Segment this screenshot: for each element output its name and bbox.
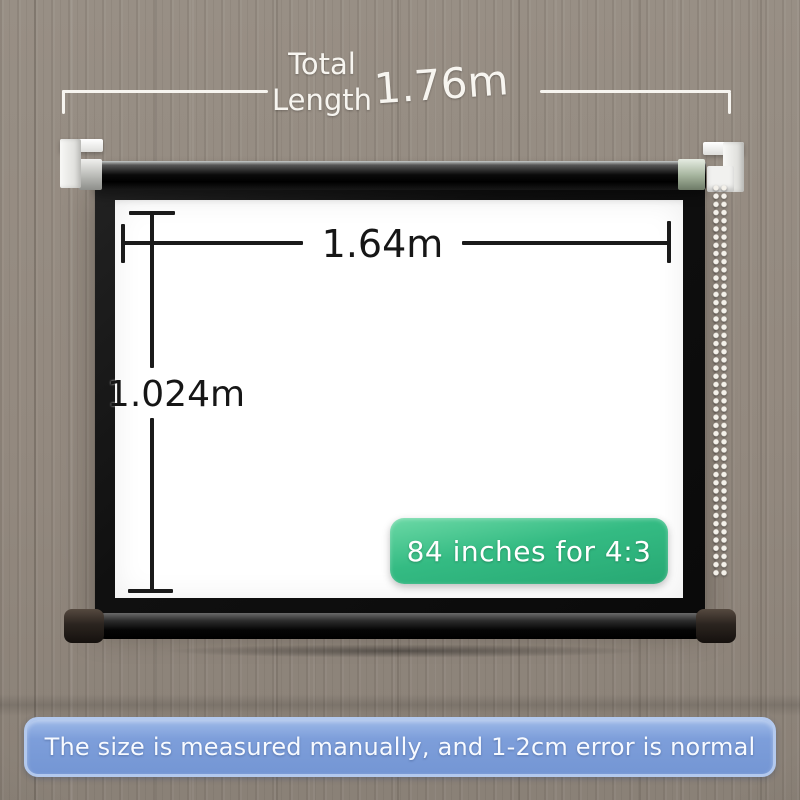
roller-bar xyxy=(94,161,706,190)
total-length-value: 1.76m xyxy=(372,56,505,114)
total-length-bracket-right-segment xyxy=(540,90,731,93)
height-dimension-tick-top xyxy=(129,211,175,215)
height-dimension-value: 1.024m xyxy=(104,374,248,415)
height-dimension-tick-bottom xyxy=(128,589,173,593)
bottom-bar-cap-left xyxy=(64,609,104,643)
width-dimension-tick-left xyxy=(121,224,125,263)
height-dimension-line-bottom xyxy=(150,418,154,592)
total-length-label: Total Length xyxy=(262,46,382,118)
pull-chain xyxy=(711,184,729,578)
width-dimension-line-right xyxy=(462,241,670,245)
product-dimension-diagram: Total Length 1.76m 1.64m 1.024m 84 inche… xyxy=(0,0,800,800)
wall-mount-bracket-left-side xyxy=(60,139,81,188)
size-badge-text: 84 inches for 4:3 xyxy=(407,535,652,568)
roller-end-cap-right xyxy=(678,159,705,190)
roller-end-cap-left xyxy=(79,159,102,190)
total-length-label-line2: Length xyxy=(262,82,382,118)
size-badge: 84 inches for 4:3 xyxy=(390,518,668,584)
bottom-weight-bar xyxy=(92,613,708,639)
total-length-label-line1: Total xyxy=(262,46,382,82)
width-dimension-tick-right xyxy=(667,221,671,263)
disclaimer-banner: The size is measured manually, and 1-2cm… xyxy=(24,717,776,777)
disclaimer-text: The size is measured manually, and 1-2cm… xyxy=(45,733,756,761)
bottom-bar-cap-right xyxy=(696,609,736,643)
height-dimension-line-top xyxy=(150,214,154,368)
total-length-bracket-right-tick xyxy=(728,92,731,114)
total-length-bracket-left-tick xyxy=(62,90,65,114)
bottom-bar-shadow xyxy=(84,642,724,660)
total-length-bracket-left-segment xyxy=(62,90,268,93)
width-dimension-value: 1.64m xyxy=(303,222,462,266)
wall-floor-shadow xyxy=(0,694,800,716)
